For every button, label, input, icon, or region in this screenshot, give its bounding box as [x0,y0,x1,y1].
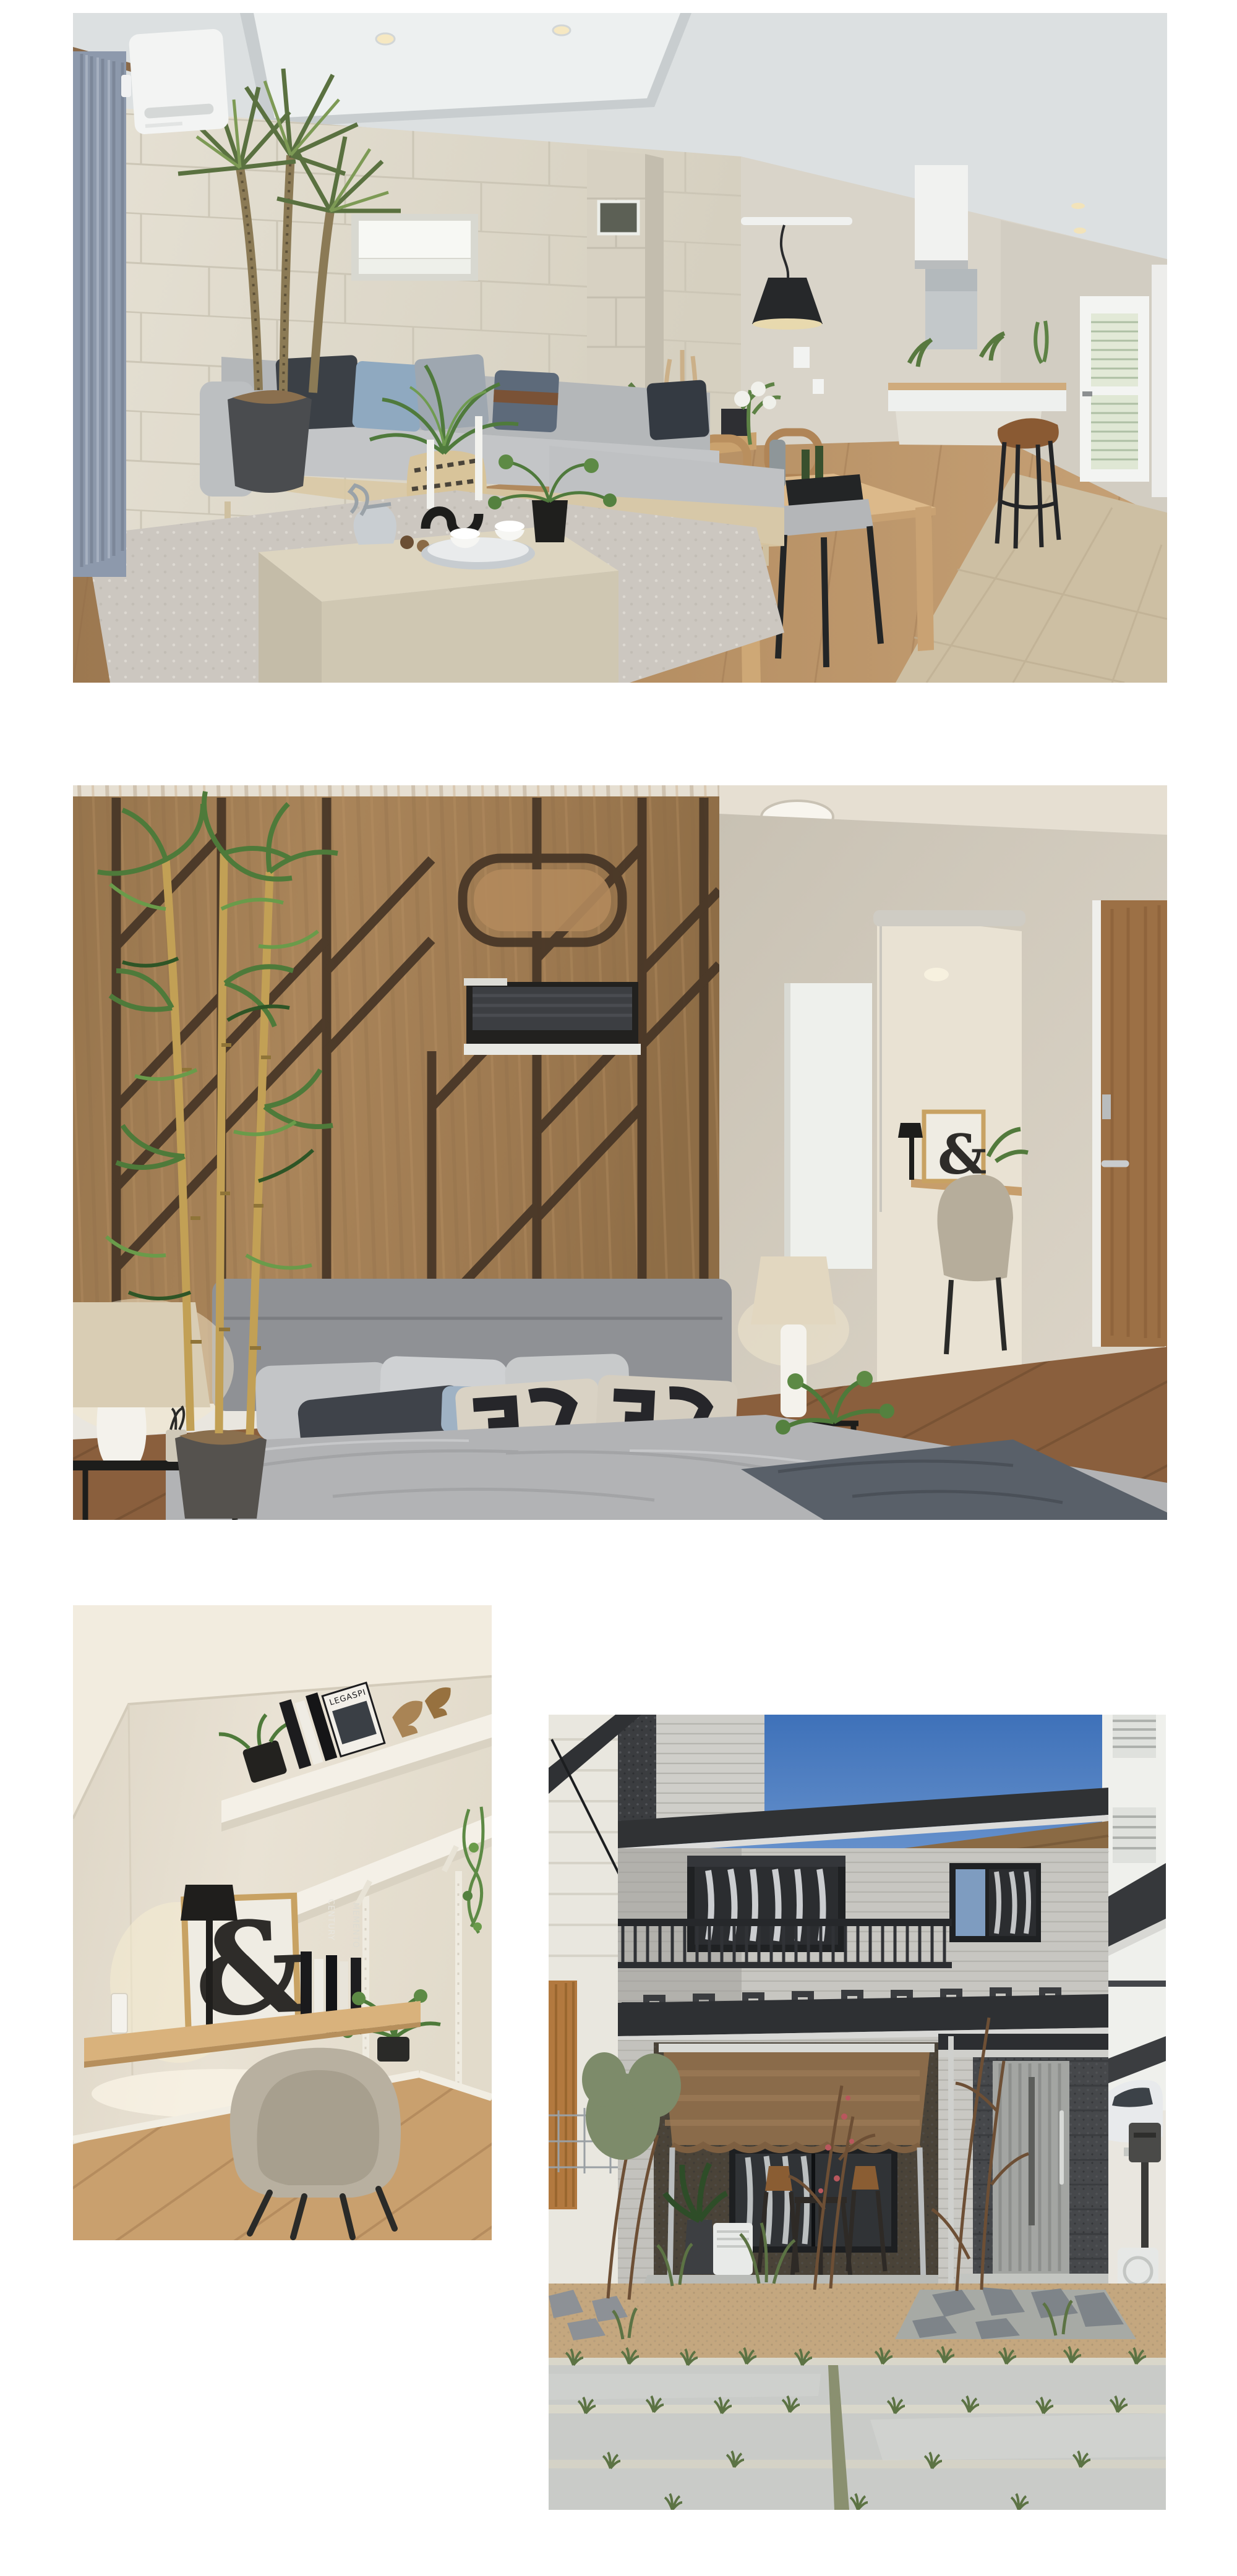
corner-window [949,1863,1041,1942]
photo-exterior [549,1715,1166,2510]
photo-study-nook: LEGASPI & [73,1605,492,2240]
slit-window-pillar [599,202,638,234]
bedroom-scene: & [73,785,1167,1520]
photo-collage-page: & [0,0,1237,2576]
outlet [111,1994,127,2033]
back-door [1080,296,1149,482]
wooden-door [1092,900,1167,1347]
nook-opening: & [873,910,1028,1405]
living-dining-scene [73,13,1167,683]
closet-door [1152,265,1167,497]
photo-bedroom: & [73,785,1167,1520]
slit-window-bedroom [464,978,641,1055]
study-nook-scene: LEGASPI & [73,1605,492,2240]
driveway [549,2347,1166,2510]
book-title: MEMENTO [351,1903,360,1948]
mailbox [1129,2123,1161,2162]
air-conditioner [129,28,229,135]
exterior-scene [549,1715,1166,2510]
book-title: CENTURY [326,1899,335,1941]
main-house-lower [618,2034,1108,2290]
slit-window-living [351,214,478,281]
front-door [993,2061,1069,2274]
neighbor-right [1102,1715,1166,2317]
photo-living-dining [73,13,1167,683]
closet-door [784,983,872,1269]
